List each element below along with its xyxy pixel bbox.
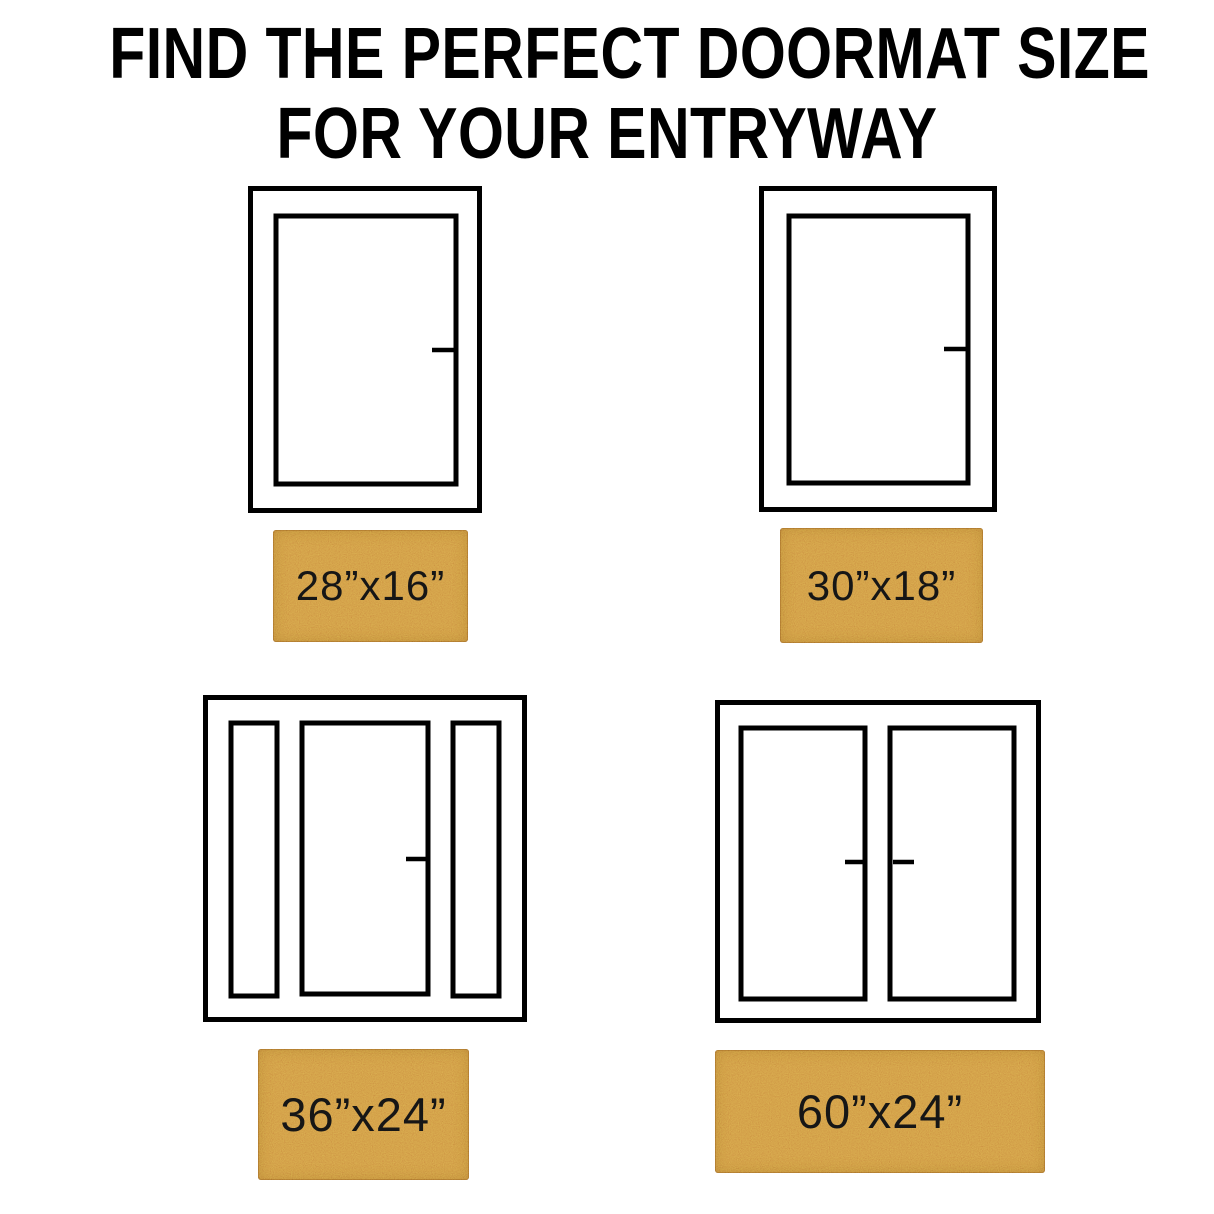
doormat-size-infographic: FIND THE PERFECT DOORMAT SIZE FOR YOUR E… [0, 0, 1214, 1214]
page-title-line-1: FIND THE PERFECT DOORMAT SIZE [109, 14, 1104, 94]
door-frame [206, 698, 525, 1020]
right-sidelight [453, 723, 499, 996]
doormat-60x24: 60”x24” [715, 1050, 1045, 1173]
doormat-28x16: 28”x16” [273, 530, 468, 642]
doormat-size-label: 28”x16” [296, 562, 445, 610]
single-door-diagram-1 [248, 186, 482, 513]
single-door-diagram-2 [759, 186, 997, 512]
page-title-line-2: FOR YOUR ENTRYWAY [109, 94, 1104, 174]
left-sidelight [231, 723, 277, 996]
doormat-size-label: 60”x24” [797, 1084, 963, 1139]
doormat-size-label: 30”x18” [807, 562, 956, 610]
door-panel [276, 216, 456, 484]
door-with-sidelights-diagram [203, 695, 527, 1022]
doormat-36x24: 36”x24” [258, 1049, 469, 1180]
doormat-30x18: 30”x18” [780, 528, 983, 643]
double-door-diagram [715, 700, 1041, 1023]
doormat-size-label: 36”x24” [280, 1087, 446, 1142]
page-title: FIND THE PERFECT DOORMAT SIZE FOR YOUR E… [0, 14, 1214, 174]
door-panel [789, 216, 968, 483]
door-frame [718, 703, 1039, 1021]
